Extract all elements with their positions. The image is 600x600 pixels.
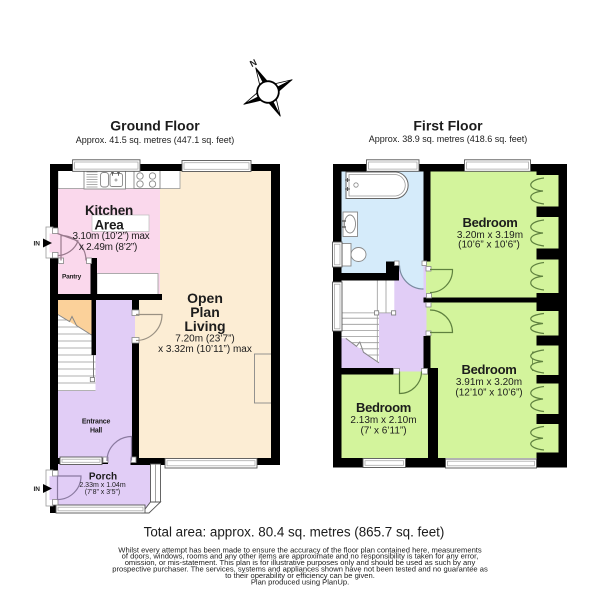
svg-text:(7’8” x 3’5”): (7’8” x 3’5”) xyxy=(85,489,120,496)
svg-text:Entrance: Entrance xyxy=(82,419,111,426)
svg-text:Porch: Porch xyxy=(89,472,117,483)
svg-text:Bedroom: Bedroom xyxy=(463,215,518,230)
svg-text:Approx. 38.9 sq. metres (418.6: Approx. 38.9 sq. metres (418.6 sq. feet) xyxy=(369,134,528,144)
svg-text:Living: Living xyxy=(184,318,225,334)
svg-text:(12’10” x 10’6”): (12’10” x 10’6”) xyxy=(455,388,522,399)
svg-text:Ground Floor: Ground Floor xyxy=(110,118,200,134)
svg-text:2.33m x 1.04m: 2.33m x 1.04m xyxy=(79,482,125,489)
svg-text:IN: IN xyxy=(34,486,41,493)
svg-text:Approx. 41.5 sq. metres (447.1: Approx. 41.5 sq. metres (447.1 sq. feet) xyxy=(76,135,235,145)
svg-text:First Floor: First Floor xyxy=(413,118,483,134)
svg-text:3.10m (10’2”) max: 3.10m (10’2”) max xyxy=(73,231,150,242)
svg-text:7.20m (23’7”): 7.20m (23’7”) xyxy=(175,334,234,345)
svg-text:Plan produced using PlanUp.: Plan produced using PlanUp. xyxy=(251,578,349,587)
svg-text:Kitchen: Kitchen xyxy=(85,203,133,218)
svg-text:Bedroom: Bedroom xyxy=(462,362,517,377)
svg-text:3.91m x 3.20m: 3.91m x 3.20m xyxy=(456,377,522,388)
svg-text:(7’ x 6’11”): (7’ x 6’11”) xyxy=(360,426,406,437)
svg-text:Hall: Hall xyxy=(90,428,102,435)
svg-text:(10’6” x 10’6”): (10’6” x 10’6”) xyxy=(458,240,520,251)
svg-text:Pantry: Pantry xyxy=(62,274,82,281)
svg-text:x 3.32m (10’11”) max: x 3.32m (10’11”) max xyxy=(158,344,252,355)
svg-text:x 2.49m (8’2”): x 2.49m (8’2”) xyxy=(79,242,137,253)
svg-text:2.13m x 2.10m: 2.13m x 2.10m xyxy=(350,415,416,426)
svg-text:IN: IN xyxy=(34,241,41,248)
svg-text:Bedroom: Bedroom xyxy=(356,400,411,415)
svg-text:Total area: approx. 80.4 sq. m: Total area: approx. 80.4 sq. metres (865… xyxy=(144,525,445,540)
